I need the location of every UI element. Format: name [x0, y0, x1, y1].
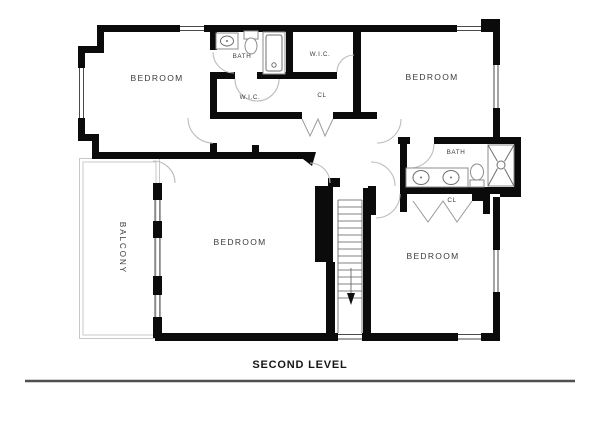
label-closet-right: CL	[447, 197, 456, 204]
label-wic-top: W.I.C.	[310, 51, 331, 58]
label-bedroom-top-right: BEDROOM	[405, 72, 458, 82]
stair-direction-arrow	[347, 293, 355, 305]
plan-title: SECOND LEVEL	[252, 359, 347, 371]
floor-plan-page: BEDROOM BEDROOM BEDROOM BEDROOM BATH W.I…	[0, 0, 600, 423]
label-bath-right: BATH	[447, 149, 466, 156]
label-bedroom-center: BEDROOM	[213, 237, 266, 247]
room-labels: BEDROOM BEDROOM BEDROOM BEDROOM BATH W.I…	[118, 51, 465, 274]
floor-plan-drawing: BEDROOM BEDROOM BEDROOM BEDROOM BATH W.I…	[0, 0, 600, 423]
label-bedroom-bottom-right: BEDROOM	[406, 251, 459, 261]
label-bath-top: BATH	[233, 53, 252, 60]
label-closet-top: CL	[317, 92, 326, 99]
bifold-door-right-closet	[413, 201, 472, 222]
staircase	[338, 200, 362, 333]
bifold-door-top-closet	[302, 119, 333, 136]
label-balcony: BALCONY	[118, 222, 127, 274]
label-bedroom-top-left: BEDROOM	[130, 73, 183, 83]
toilet-icon	[471, 164, 484, 180]
label-wic-lower: W.I.C.	[240, 94, 261, 101]
